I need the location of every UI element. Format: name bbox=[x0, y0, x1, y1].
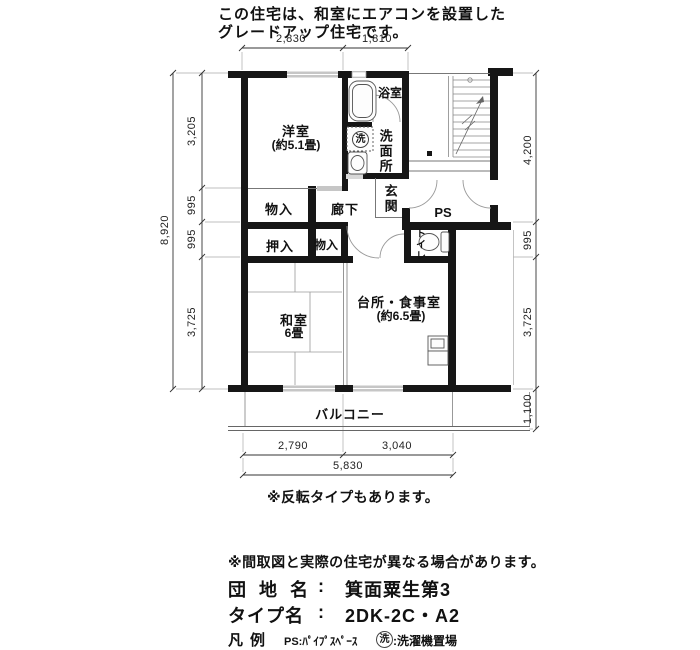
type-name-colon: : bbox=[318, 602, 324, 623]
room-toilet: トイレ bbox=[413, 228, 424, 266]
kitchen-counter bbox=[428, 351, 448, 365]
dim-bottom-2: 3,040 bbox=[367, 440, 427, 452]
legend-washer-text: :洗濯機置場 bbox=[393, 632, 457, 649]
note-flip-type: ※反転タイプもあります。 bbox=[267, 487, 439, 507]
dim-right-1: 4,200 bbox=[522, 127, 534, 173]
legend-label: 凡例 bbox=[228, 629, 272, 650]
dim-bottom-total: 5,830 bbox=[318, 460, 378, 472]
note-disclaimer: ※間取図と実際の住宅が異なる場合があります。 bbox=[228, 552, 545, 572]
room-bathroom: 浴室 bbox=[365, 84, 415, 101]
toilet-tank bbox=[441, 232, 449, 252]
estate-name-label: 団 地 名 bbox=[228, 576, 312, 602]
dim-right-2: 995 bbox=[522, 217, 534, 263]
legend-ps-text: PS:ﾊﾟｲﾌﾟｽﾍﾟｰｽ bbox=[284, 633, 357, 649]
room-balcony: バルコニー bbox=[300, 404, 400, 423]
estate-name-colon: : bbox=[318, 576, 324, 597]
dim-bottom-1: 2,790 bbox=[263, 440, 323, 452]
dim-left-3: 995 bbox=[186, 216, 198, 262]
floor-plan-page: この住宅は、和室にエアコンを設置した グレードアップ住宅です。 2,830 1,… bbox=[0, 0, 700, 650]
estate-name-value: 箕面粟生第3 bbox=[345, 576, 451, 602]
dim-top-1: 2,830 bbox=[261, 33, 321, 45]
room-pipe-space: PS bbox=[429, 205, 457, 220]
dim-right-3: 3,725 bbox=[522, 299, 534, 345]
room-storage-lower: 物入 bbox=[302, 236, 350, 253]
dim-top-2: 1,810 bbox=[347, 33, 407, 45]
sliding-door bbox=[344, 263, 348, 385]
room-storage-upper: 物入 bbox=[254, 199, 304, 218]
dim-right-4: 1,100 bbox=[522, 386, 534, 432]
legend-washer-icon: 洗 bbox=[376, 631, 393, 648]
room-closet: 押入 bbox=[255, 236, 305, 255]
room-kitchen-size: (約6.5畳) bbox=[351, 307, 451, 324]
dim-left-1: 3,205 bbox=[186, 108, 198, 154]
dim-left-4: 3,725 bbox=[186, 299, 198, 345]
dim-left-total: 8,920 bbox=[159, 207, 171, 253]
room-washroom: 洗面所 bbox=[378, 129, 392, 181]
stairs bbox=[449, 76, 491, 157]
type-name-value: 2DK-2C・A2 bbox=[345, 602, 460, 628]
room-japanese-size: 6畳 bbox=[264, 324, 324, 341]
room-corridor: 廊下 bbox=[320, 199, 370, 218]
type-name-label: タイプ名 bbox=[228, 602, 304, 628]
washer-symbol-icon: 洗 bbox=[352, 131, 369, 148]
room-entrance: 玄関 bbox=[383, 184, 397, 218]
room-western-size: (約5.1畳) bbox=[246, 136, 346, 153]
